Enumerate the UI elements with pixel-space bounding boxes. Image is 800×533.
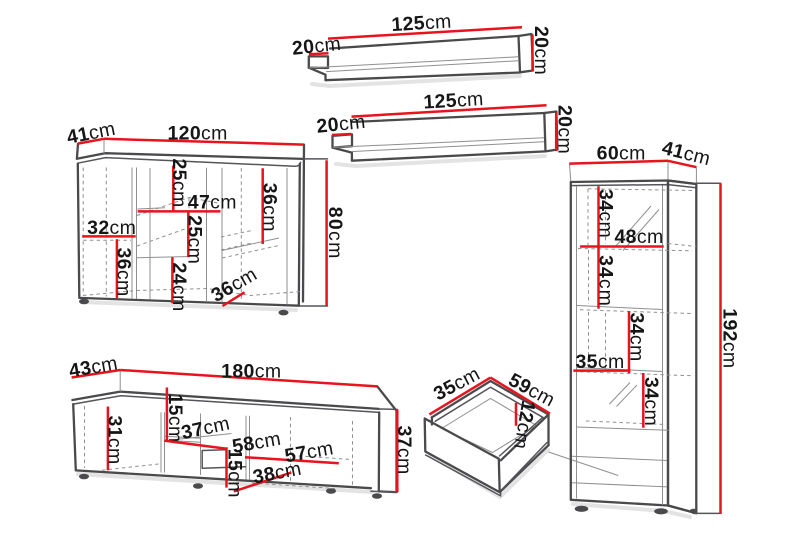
svg-text:20cm: 20cm xyxy=(530,26,552,75)
svg-text:20cm: 20cm xyxy=(554,105,576,154)
svg-text:35cm: 35cm xyxy=(575,351,624,373)
svg-text:24cm: 24cm xyxy=(168,262,190,311)
svg-text:32cm: 32cm xyxy=(87,217,136,239)
svg-text:48cm: 48cm xyxy=(614,226,663,248)
svg-text:34cm: 34cm xyxy=(626,312,648,361)
svg-text:37cm: 37cm xyxy=(393,425,415,474)
svg-text:60cm: 60cm xyxy=(597,143,646,165)
svg-text:36cm: 36cm xyxy=(113,247,135,296)
svg-text:80cm: 80cm xyxy=(324,207,346,260)
svg-text:15cm: 15cm xyxy=(224,449,246,498)
svg-text:25cm: 25cm xyxy=(184,215,206,264)
svg-text:34cm: 34cm xyxy=(640,377,662,426)
svg-text:120cm: 120cm xyxy=(167,122,227,144)
svg-text:31cm: 31cm xyxy=(104,415,126,464)
svg-text:192cm: 192cm xyxy=(719,308,741,368)
svg-text:125cm: 125cm xyxy=(391,10,453,36)
svg-text:36cm: 36cm xyxy=(258,183,280,232)
svg-text:34cm: 34cm xyxy=(595,255,617,307)
svg-text:47cm: 47cm xyxy=(188,191,237,213)
svg-text:34cm: 34cm xyxy=(595,189,617,238)
svg-text:125cm: 125cm xyxy=(423,88,485,114)
svg-text:180cm: 180cm xyxy=(221,361,281,383)
